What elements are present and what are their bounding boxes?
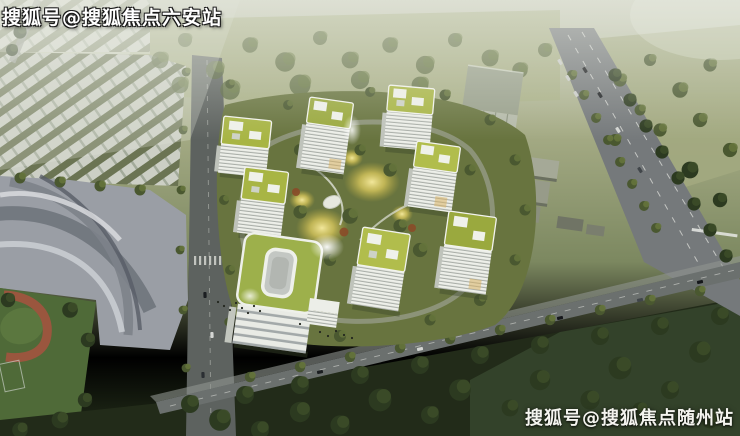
school-annex: [306, 298, 339, 328]
aerial-rendering: 搜狐号@搜狐焦点六安站 搜狐号@搜狐焦点随州站: [0, 0, 740, 436]
